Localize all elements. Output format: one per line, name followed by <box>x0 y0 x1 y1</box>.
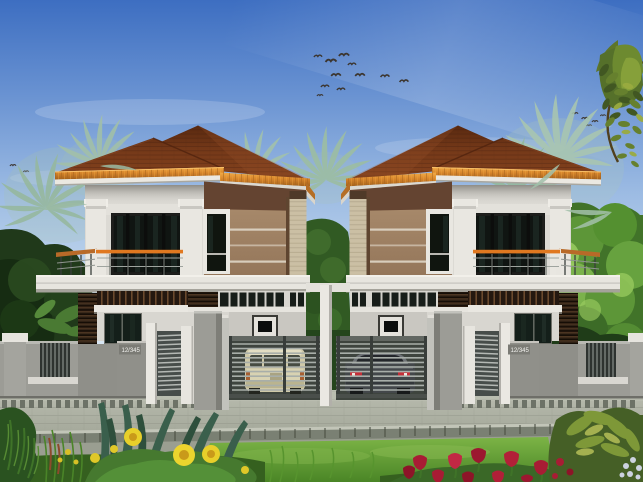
svg-text:12/345: 12/345 <box>122 348 141 354</box>
svg-text:12/345: 12/345 <box>511 348 530 354</box>
